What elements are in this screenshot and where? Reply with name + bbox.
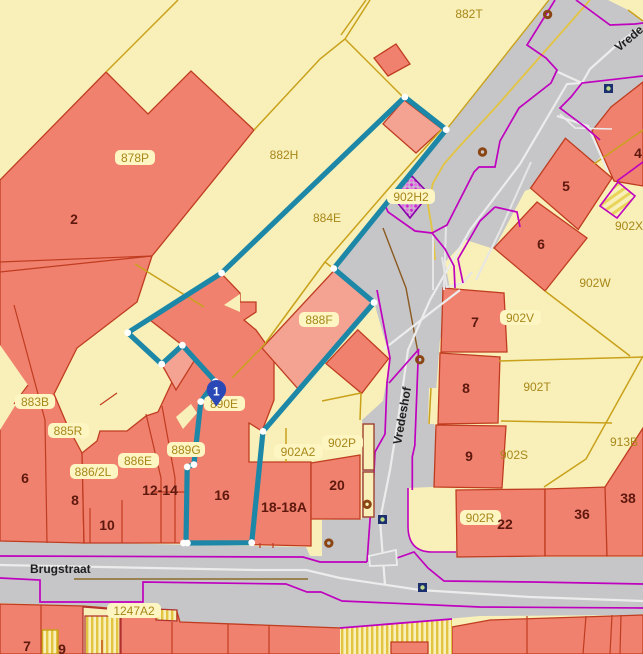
- svg-text:12-14: 12-14: [142, 482, 178, 498]
- svg-text:2: 2: [70, 211, 78, 227]
- svg-text:902W: 902W: [579, 276, 611, 290]
- svg-text:10: 10: [99, 517, 115, 533]
- svg-text:1: 1: [213, 385, 220, 399]
- svg-text:6: 6: [21, 470, 29, 486]
- svg-text:902X: 902X: [615, 219, 643, 233]
- svg-text:8: 8: [71, 492, 79, 508]
- svg-text:882H: 882H: [270, 148, 299, 162]
- svg-text:902P: 902P: [328, 436, 356, 450]
- svg-text:882T: 882T: [455, 7, 483, 21]
- svg-text:1247A2: 1247A2: [113, 604, 155, 618]
- svg-text:18-18A: 18-18A: [261, 499, 307, 515]
- svg-text:7: 7: [471, 314, 479, 330]
- svg-text:6: 6: [537, 236, 545, 252]
- svg-text:36: 36: [574, 506, 590, 522]
- svg-text:902S: 902S: [500, 448, 528, 462]
- svg-text:16: 16: [214, 487, 230, 503]
- svg-text:7: 7: [23, 638, 31, 654]
- svg-text:888F: 888F: [305, 313, 332, 327]
- svg-text:22: 22: [497, 516, 513, 532]
- svg-text:8: 8: [462, 380, 470, 396]
- svg-text:878P: 878P: [121, 151, 149, 165]
- svg-text:902R: 902R: [466, 511, 495, 525]
- svg-text:884E: 884E: [313, 211, 341, 225]
- svg-text:902A2: 902A2: [281, 445, 316, 459]
- svg-text:38: 38: [620, 490, 636, 506]
- svg-text:9: 9: [465, 448, 473, 464]
- svg-text:Brugstraat: Brugstraat: [30, 562, 91, 576]
- svg-text:902T: 902T: [523, 380, 551, 394]
- svg-text:9: 9: [58, 641, 66, 654]
- svg-text:902H2: 902H2: [393, 190, 429, 204]
- svg-text:5: 5: [562, 178, 570, 194]
- svg-text:886E: 886E: [124, 454, 152, 468]
- svg-text:20: 20: [329, 477, 345, 493]
- svg-text:4: 4: [634, 145, 642, 161]
- svg-text:883B: 883B: [21, 395, 49, 409]
- svg-text:886/2L: 886/2L: [75, 465, 112, 479]
- svg-text:885R: 885R: [54, 424, 83, 438]
- svg-text:889G: 889G: [171, 443, 200, 457]
- svg-text:913B: 913B: [610, 435, 638, 449]
- svg-text:902V: 902V: [506, 311, 534, 325]
